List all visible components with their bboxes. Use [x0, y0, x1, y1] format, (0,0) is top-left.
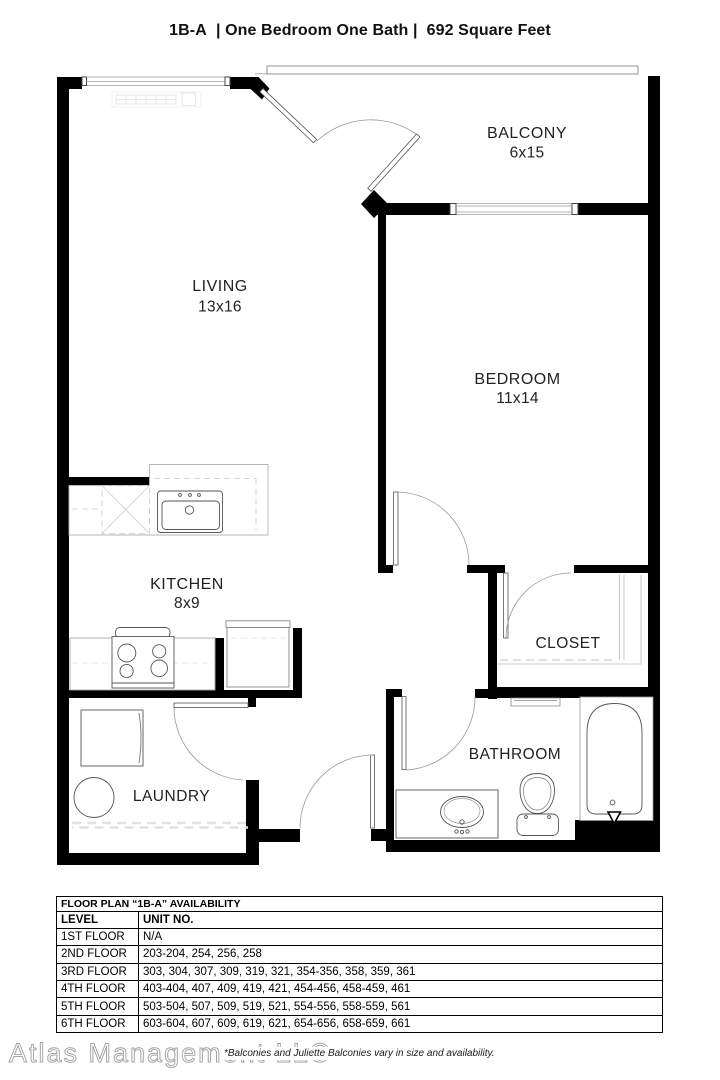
svg-text:LIVING: LIVING — [192, 278, 247, 295]
svg-text:BALCONY: BALCONY — [487, 125, 567, 142]
svg-text:LAUNDRY: LAUNDRY — [133, 788, 210, 805]
svg-text:CLOSET: CLOSET — [535, 635, 600, 652]
svg-text:6x15: 6x15 — [510, 145, 545, 162]
svg-text:8x9: 8x9 — [174, 595, 200, 612]
svg-text:BEDROOM: BEDROOM — [474, 371, 560, 388]
svg-text:KITCHEN: KITCHEN — [150, 576, 224, 593]
svg-text:13x16: 13x16 — [198, 299, 242, 316]
svg-text:BATHROOM: BATHROOM — [469, 746, 561, 763]
svg-text:11x14: 11x14 — [496, 390, 539, 407]
